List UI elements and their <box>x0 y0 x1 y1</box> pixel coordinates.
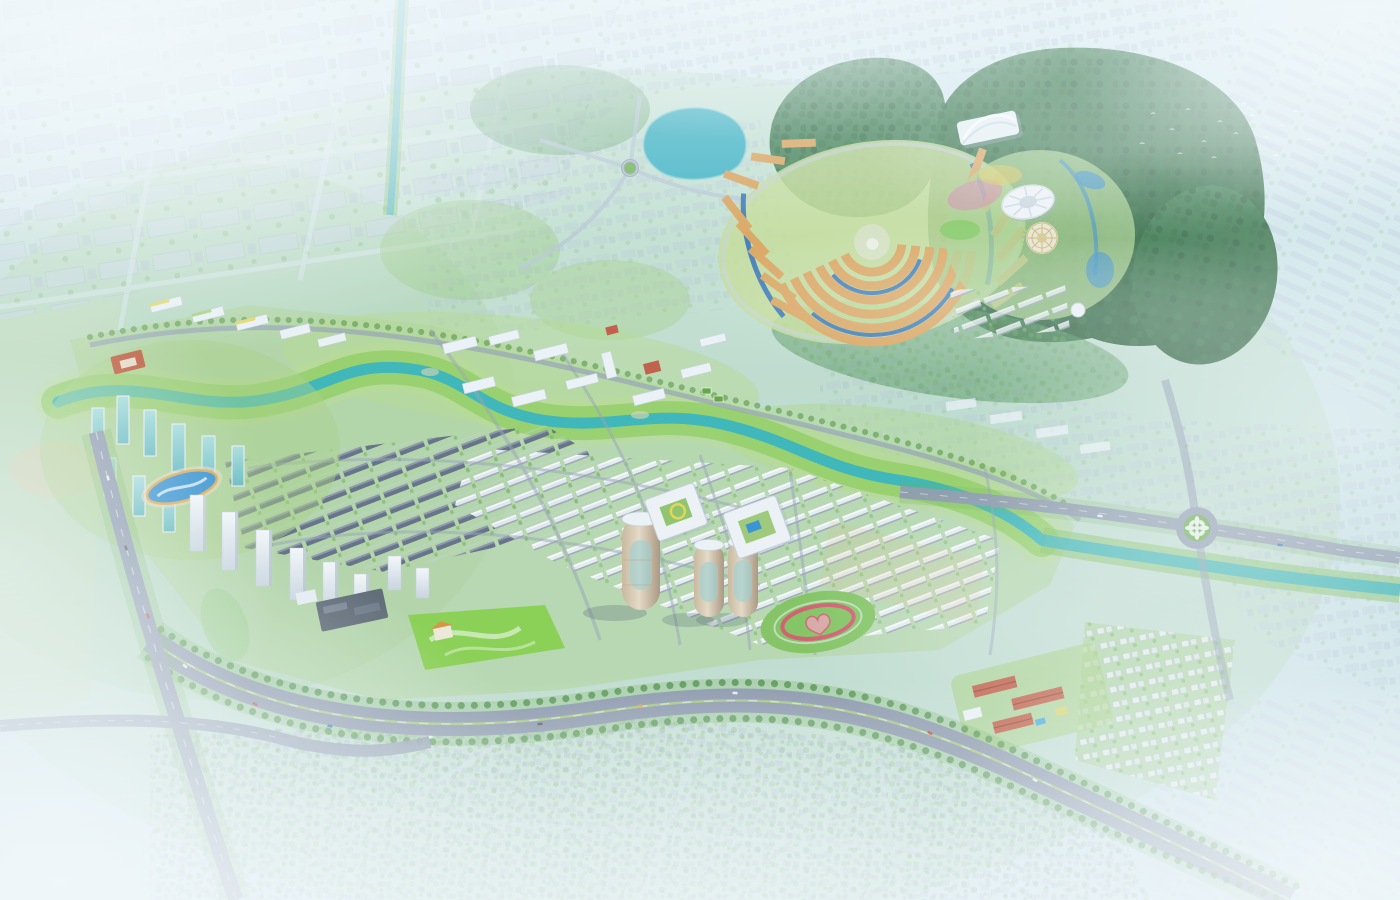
aerial-render-canvas <box>0 0 1400 900</box>
aerial-render <box>0 0 1400 900</box>
fog-overlay <box>0 0 1400 900</box>
